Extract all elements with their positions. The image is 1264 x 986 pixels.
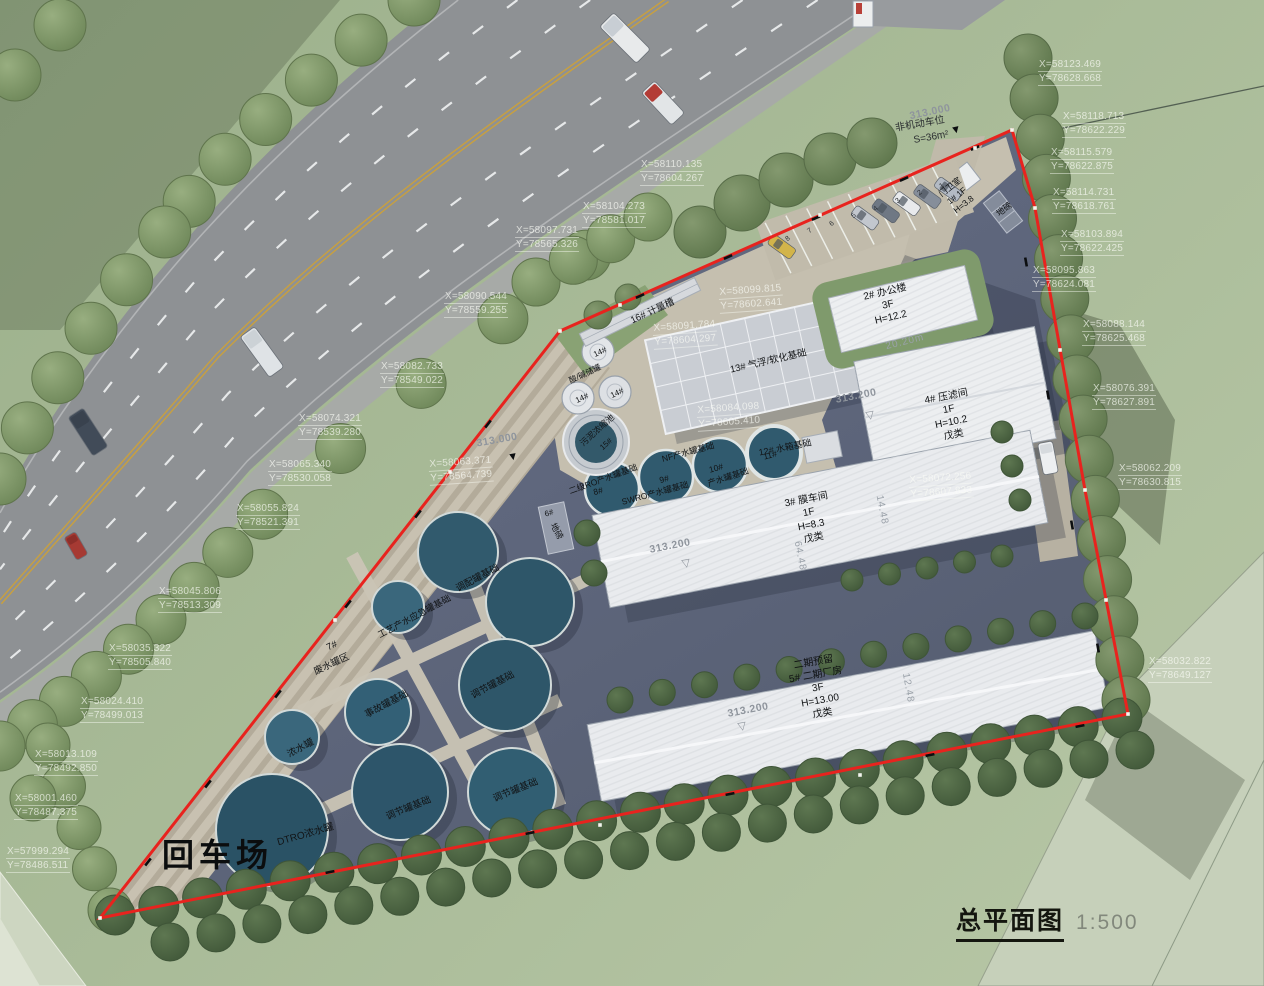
coordinate-label: X=58123.469Y=78628.668 (1038, 58, 1102, 86)
boundary-node (1104, 598, 1108, 602)
coordinate-label: X=58097.731Y=78565.326 (515, 224, 579, 252)
tree (945, 626, 971, 652)
coordinate-x: X=58123.469 (1038, 58, 1102, 72)
coordinate-label: X=58076.391Y=78627.891 (1092, 382, 1156, 410)
site-plan: X=58123.469Y=78628.668X=58118.713Y=78622… (0, 0, 1264, 986)
tree (916, 557, 938, 579)
coordinate-x: X=58097.731 (515, 224, 579, 238)
tree (289, 896, 327, 934)
coordinate-y: Y=78499.013 (80, 709, 144, 723)
tree (427, 868, 465, 906)
tree (1001, 455, 1023, 477)
coordinate-y: Y=78581.017 (582, 214, 646, 228)
coordinate-x: X=58024.410 (80, 695, 144, 709)
coordinate-y: Y=78486.511 (6, 859, 70, 873)
coordinate-y: Y=78487.375 (14, 806, 78, 820)
tree (702, 813, 740, 851)
tree (932, 768, 970, 806)
tree (903, 634, 929, 660)
tree (65, 302, 117, 354)
coordinate-x: X=58065.340 (268, 458, 332, 472)
coordinate-label: X=58055.824Y=78521.391 (236, 502, 300, 530)
coordinate-y: Y=78492.850 (34, 762, 98, 776)
coordinate-y: Y=78618.761 (1052, 200, 1116, 214)
coordinate-x: X=58035.322 (108, 642, 172, 656)
coordinate-x: X=58055.824 (236, 502, 300, 516)
tree (139, 206, 191, 258)
tree (581, 560, 607, 586)
boundary-node (333, 618, 337, 622)
tree (32, 352, 84, 404)
boundary-node (858, 773, 862, 777)
coordinate-x: X=58118.713 (1062, 110, 1126, 124)
boundary-node (618, 303, 622, 307)
coordinate-y: Y=78622.425 (1060, 242, 1124, 256)
coordinate-y: Y=78521.391 (236, 516, 300, 530)
coordinate-label: X=58099.815Y=78602.641 (718, 282, 784, 314)
coordinate-x: X=57999.294 (6, 845, 70, 859)
coordinate-x: X=58110.135 (640, 158, 704, 172)
coordinate-x: X=58032.822 (1148, 655, 1212, 669)
coordinate-x: X=58090.544 (444, 290, 508, 304)
coordinate-label: X=58114.731Y=78618.761 (1052, 186, 1116, 214)
phase2-factory-label: 二期预留 5# 二期厂房 3F H=13.00 戊类 (786, 651, 850, 724)
tree (1030, 611, 1056, 637)
coordinate-x: X=58076.391 (1092, 382, 1156, 396)
tree (101, 254, 153, 306)
tree (794, 795, 832, 833)
boundary-node (558, 329, 562, 333)
coordinate-x: X=58082.733 (380, 360, 444, 374)
coordinate-y: Y=78559.255 (444, 304, 508, 318)
boundary-node (98, 916, 102, 920)
tree (519, 850, 557, 888)
coordinate-y: Y=78513.309 (158, 599, 222, 613)
tree (748, 804, 786, 842)
turnaround-label: 回车场 (162, 830, 273, 876)
coordinate-x: X=58088.144 (1082, 318, 1146, 332)
coordinate-label: X=57999.294Y=78486.511 (6, 845, 70, 873)
tree (1009, 489, 1031, 511)
filter-press-label: 4# 压滤间 1F H=10.2 戊类 (923, 386, 976, 445)
coordinate-label: X=58095.863Y=78624.081 (1032, 264, 1096, 292)
coordinate-label: X=58074.321Y=78539.280 (298, 412, 362, 440)
coordinate-label: X=58118.713Y=78622.229 (1062, 110, 1126, 138)
boundary-node (598, 823, 602, 827)
coordinate-y: Y=78604.267 (640, 172, 704, 186)
coordinate-label: X=58072.256Y=78607.833 (908, 470, 974, 502)
tree (199, 133, 251, 185)
tree (1024, 749, 1062, 787)
coordinate-label: X=58024.410Y=78499.013 (80, 695, 144, 723)
tree (73, 847, 117, 891)
tree (151, 923, 189, 961)
coordinate-label: X=58035.322Y=78505.840 (108, 642, 172, 670)
coordinate-label: X=58088.144Y=78625.468 (1082, 318, 1146, 346)
tree (611, 832, 649, 870)
tree (1116, 731, 1154, 769)
coordinate-y: Y=78539.280 (298, 426, 362, 440)
tree (879, 563, 901, 585)
tree (649, 679, 675, 705)
elevation-marker-icon: ▼ (949, 123, 962, 137)
tree (335, 886, 373, 924)
coordinate-y: Y=78625.468 (1082, 332, 1146, 346)
coordinate-label: X=58091.784Y=78604.297 (652, 318, 718, 350)
coordinate-label: X=58065.340Y=78530.058 (268, 458, 332, 486)
coordinate-y: Y=78622.875 (1050, 160, 1114, 174)
tree (285, 54, 337, 106)
boundary-node (1083, 488, 1087, 492)
tree (734, 664, 760, 690)
coordinate-y: Y=78630.815 (1118, 476, 1182, 490)
coordinate-x: X=58013.109 (34, 748, 98, 762)
coordinate-label: X=58104.273Y=78581.017 (582, 200, 646, 228)
coordinate-x: X=58074.321 (298, 412, 362, 426)
coordinate-x: X=58104.273 (582, 200, 646, 214)
coordinate-y: Y=78627.891 (1092, 396, 1156, 410)
coordinate-y: Y=78565.326 (515, 238, 579, 252)
tree (34, 0, 86, 51)
drawing-title: 总平面图 1:500 (956, 901, 1139, 942)
tree (841, 569, 863, 591)
coordinate-label: X=58082.733Y=78549.022 (380, 360, 444, 388)
storage-tank (352, 744, 448, 840)
boundary-node (1010, 128, 1014, 132)
tree (240, 94, 292, 146)
tree (991, 421, 1013, 443)
coordinate-label: X=58103.894Y=78622.425 (1060, 228, 1124, 256)
tree (988, 618, 1014, 644)
coordinate-x: X=58045.806 (158, 585, 222, 599)
tree (473, 859, 511, 897)
coordinate-label: X=58110.135Y=78604.267 (640, 158, 704, 186)
coordinate-label: X=58115.579Y=78622.875 (1050, 146, 1114, 174)
tree (1072, 603, 1098, 629)
coordinate-y: Y=78622.229 (1062, 124, 1126, 138)
boundary-node (818, 213, 822, 217)
title-text: 总平面图 (956, 901, 1064, 942)
tree (1070, 740, 1108, 778)
tree (978, 758, 1016, 796)
coordinate-label: X=58001.460Y=78487.375 (14, 792, 78, 820)
coordinate-x: X=58001.460 (14, 792, 78, 806)
coordinate-y: Y=78628.668 (1038, 72, 1102, 86)
membrane-workshop-label: 3# 膜车间 1F H=8.3 戊类 (783, 489, 836, 548)
boundary-node (1126, 712, 1130, 716)
coordinate-y: Y=78505.840 (108, 656, 172, 670)
sludge-thickener-15 (563, 409, 629, 475)
coordinate-x: X=58103.894 (1060, 228, 1124, 242)
tree (954, 551, 976, 573)
boundary-node (1033, 206, 1037, 210)
tree (574, 520, 600, 546)
tree (335, 14, 387, 66)
coordinate-x: X=58062.209 (1118, 462, 1182, 476)
coordinate-label: X=58084.098Y=78605.410 (696, 400, 762, 432)
tree (861, 641, 887, 667)
tree (692, 672, 718, 698)
boundary-node (973, 146, 977, 150)
coordinate-x: X=58095.863 (1032, 264, 1096, 278)
tree (243, 905, 281, 943)
tree (840, 786, 878, 824)
coordinate-x: X=58114.731 (1052, 186, 1116, 200)
tree (381, 877, 419, 915)
coordinate-y: Y=78530.058 (268, 472, 332, 486)
tree (565, 841, 603, 879)
tree (197, 914, 235, 952)
tree (657, 822, 695, 860)
tree (991, 545, 1013, 567)
tree (1, 402, 53, 454)
tree (607, 687, 633, 713)
coordinate-label: X=58090.544Y=78559.255 (444, 290, 508, 318)
tree (847, 118, 897, 168)
coordinate-label: X=58062.209Y=78630.815 (1118, 462, 1182, 490)
coordinate-x: X=58115.579 (1050, 146, 1114, 160)
title-scale: 1:500 (1076, 911, 1139, 935)
boundary-node (1058, 348, 1062, 352)
coordinate-y: Y=78549.022 (380, 374, 444, 388)
tree (886, 777, 924, 815)
coordinate-y: Y=78649.127 (1148, 669, 1212, 683)
elevation-marker-icon: ▼ (507, 450, 520, 464)
coordinate-label: X=58032.822Y=78649.127 (1148, 655, 1212, 683)
coordinate-label: X=58045.806Y=78513.309 (158, 585, 222, 613)
coordinate-label: X=58063.371Y=78564.739 (428, 454, 494, 486)
coordinate-label: X=58013.109Y=78492.850 (34, 748, 98, 776)
coordinate-y: Y=78624.081 (1032, 278, 1096, 292)
